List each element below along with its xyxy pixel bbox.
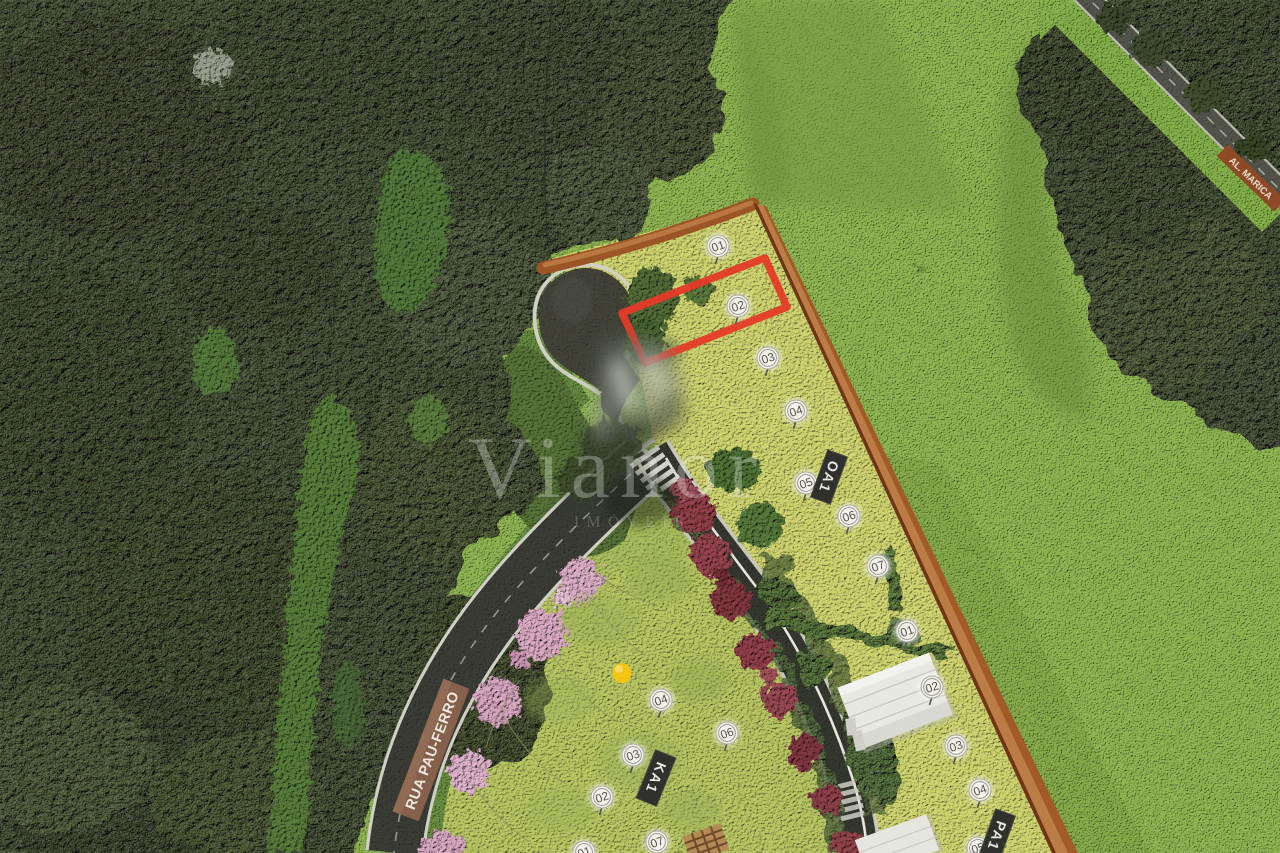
svg-text:Vianor: Vianor	[468, 420, 767, 517]
svg-text:IMÓVEIS: IMÓVEIS	[574, 514, 691, 531]
